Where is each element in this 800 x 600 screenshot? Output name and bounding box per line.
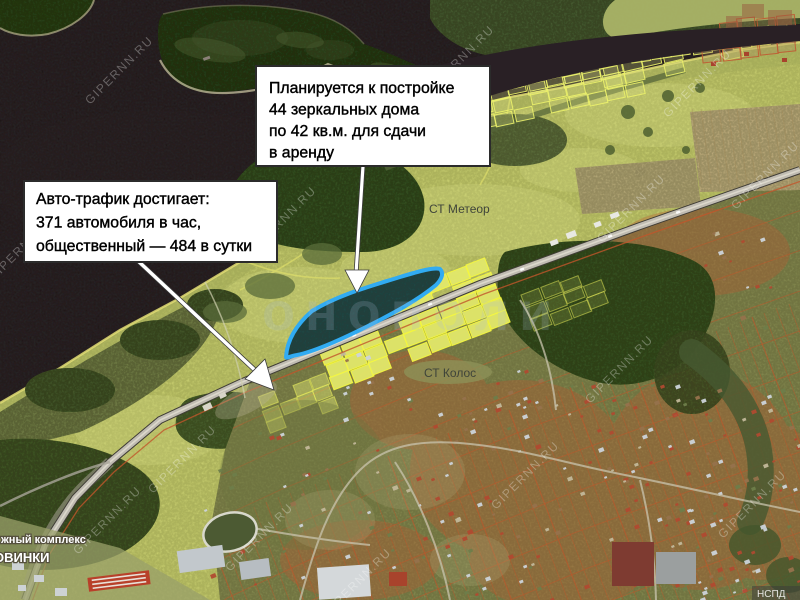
svg-text:общественный — 484 в сутки: общественный — 484 в сутки <box>36 238 252 255</box>
svg-text:НСПД: НСПД <box>757 589 786 600</box>
svg-text:СТ Колос: СТ Колос <box>424 366 476 380</box>
svg-text:44 зеркальных дома: 44 зеркальных дома <box>269 102 419 119</box>
svg-text:Авто-трафик достигает:: Авто-трафик достигает: <box>36 191 210 208</box>
svg-text:по 42 кв.м. для сдачи: по 42 кв.м. для сдачи <box>269 123 426 140</box>
svg-text:в аренду: в аренду <box>269 145 334 162</box>
svg-text:СТ Метеор: СТ Метеор <box>429 202 490 216</box>
svg-text:ОВИНКИ: ОВИНКИ <box>0 550 50 565</box>
svg-text:371 автомобиля в час,: 371 автомобиля в час, <box>36 215 201 232</box>
svg-text:жный комплекс: жный комплекс <box>0 534 86 546</box>
svg-text:Планируется к постройке: Планируется к постройке <box>269 80 455 97</box>
svg-text:онополи: онополи <box>262 282 562 342</box>
